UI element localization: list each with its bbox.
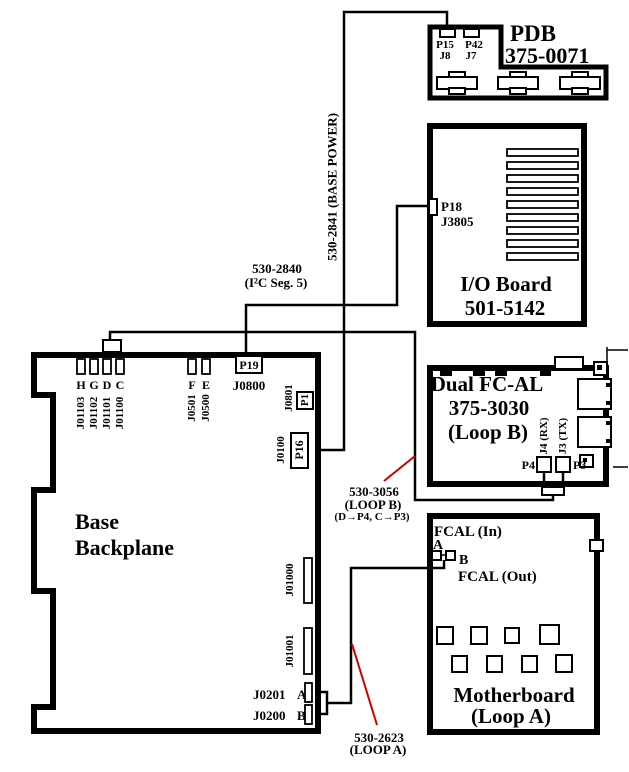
slot-label-j01001: J01001 [284,635,296,668]
connector-j7-label: J7 [466,50,478,62]
connector-p19-label: P19 [239,358,258,372]
connector-p18-label: P18 [441,199,462,214]
fcal-title: Dual FC-AL [431,372,544,396]
slot-label-j01101: J01101 [101,397,113,429]
dc-cable-bracket [103,340,121,352]
connector-p3 [556,457,570,472]
fcal-conn1-tick-top [606,383,611,387]
connector-p3-label: P3 [573,458,586,472]
cable-i2c-label: 530-2840 (I²C Seg. 5) [245,261,308,290]
connector-j3805-label: J3805 [441,214,474,229]
p4-p3-cable-bracket [542,487,564,495]
slot-key-e: E [202,378,210,392]
connector-p15-j8 [440,29,455,37]
fcal-conn2-tick-bottom [606,439,611,443]
cable-i2c-label-line1: 530-2840 [252,261,302,276]
mb-key-b: B [459,553,468,568]
slot-j0501 [188,359,196,374]
wiring-diagram-page: Base Backplane H G D C J01103 J01102 J01… [0,0,629,767]
slot-j01101 [103,359,111,374]
mb-right-edge-connector [590,540,603,551]
slot-j01100 [116,359,124,374]
connector-p42-j7 [464,29,479,37]
slot-label-j0501: J0501 [186,394,198,422]
slot-label-j0500: J0500 [200,394,212,422]
pdb-board: P15 P42 J8 J7 PDB 375-0071 [430,21,606,98]
io-part-number: 501-5142 [465,296,546,320]
mb-loop-label: (Loop A) [471,704,551,728]
slot-j0200 [305,705,312,724]
connector-j8-label: J8 [440,50,452,62]
connector-j0800-label: J0800 [233,378,266,393]
pdb-part-number: 375-0071 [505,43,589,68]
connector-p4 [537,457,551,472]
fcal-mount-screw-top [597,365,602,370]
loop-a-pointer-line [352,644,377,725]
slot-j01102 [90,359,98,374]
connector-p16-label: P16 [292,440,306,459]
slot-label-j0200: J0200 [253,708,286,723]
slot-label-j01103: J01103 [75,396,87,429]
fcal-conn1-tick-bottom [606,401,611,405]
motherboard: FCAL (In) A B FCAL (Out) Motherboard (Lo… [430,516,603,732]
fcal-loop-label: (Loop B) [448,420,528,444]
connector-p1-label: P1 [299,394,311,406]
fcal-board: P4 P3 J4 (RX) J3 (TX) Dual FC-AL 375-303… [430,347,628,495]
cable-loop-a-wire [312,560,444,714]
slot-label-j01102: J01102 [88,396,100,429]
fcal-out-connector-b [446,551,455,560]
base-backplane-board: Base Backplane H G D C J01103 J01102 J01… [34,340,318,731]
backplane-title-line2: Backplane [75,535,174,560]
system-cabling-diagram: Base Backplane H G D C J01103 J01102 J01… [0,0,629,767]
connector-p4-label: P4 [522,458,535,472]
io-board: P18 J3805 I/O Board 501-5142 [429,126,584,324]
io-slot-bank [507,149,578,260]
connector-p18 [429,199,437,215]
mb-fcal-in-label: FCAL (In) [434,524,502,540]
cable-loop-a-label: 530-2623 (LOOP A) [350,730,407,757]
slot-label-j01000: J01000 [284,563,296,597]
fcal-part-number: 375-3030 [449,396,530,420]
connector-j4rx-label: J4 (RX) [538,417,550,454]
slot-key-f: F [188,378,195,392]
loop-b-pointer-line [384,456,415,481]
connector-j3tx-label: J3 (TX) [557,417,569,454]
cable-loop-b-label-line2: (LOOP B) [345,497,402,512]
backplane-title-line1: Base [75,509,119,534]
slot-key-a: A [297,687,307,702]
slot-label-j01100: J01100 [114,396,126,429]
mb-key-a: A [433,538,444,553]
slot-j0500 [202,359,210,374]
connector-j0801-label: J0801 [283,384,295,412]
cable-base-power-label: 530-2841 (BASE POWER) [325,113,340,261]
slot-label-j0201: J0201 [253,687,286,702]
mb-fcal-out-label: FCAL (Out) [458,569,537,585]
cable-loop-a-label-line2: (LOOP A) [350,742,407,757]
fcal-conn2-tick-top [606,421,611,425]
slot-j01000 [304,558,312,603]
fcal-top-notch [555,357,583,369]
slot-key-c: C [116,378,125,392]
slot-key-h: H [76,378,86,392]
cable-loop-b-label: 530-3056 (LOOP B) (D→P4, C→P3) [334,484,409,523]
slot-j01103 [77,359,85,374]
slot-key-b: B [297,708,306,723]
cable-loop-b-label-line3: (D→P4, C→P3) [334,511,409,523]
slot-key-d: D [103,378,112,392]
slot-key-g: G [89,378,98,392]
connector-j0100-label: J0100 [275,436,287,464]
cable-i2c-label-line2: (I²C Seg. 5) [245,275,308,290]
slot-j01001 [304,628,312,674]
io-title: I/O Board [460,272,552,296]
